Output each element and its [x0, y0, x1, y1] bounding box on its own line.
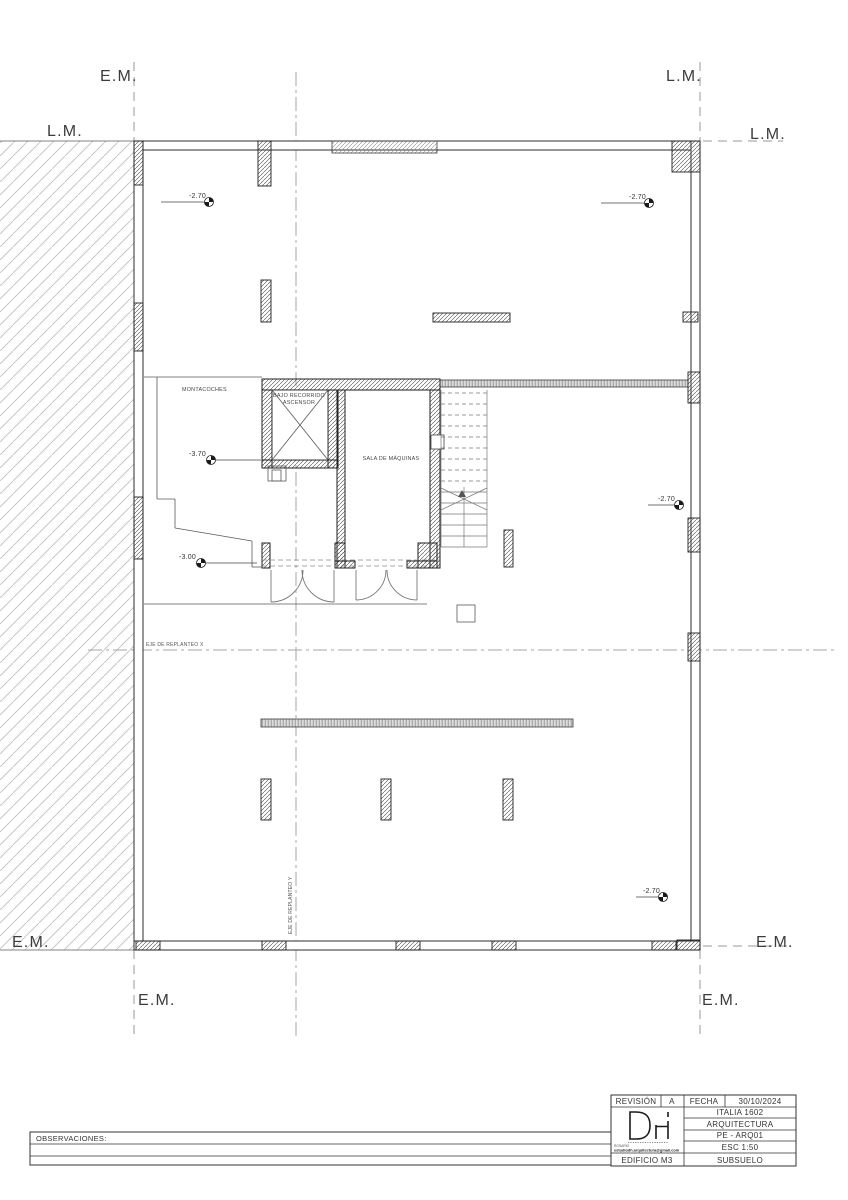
- room-labels: MONTACOCHES BAJO RECORRIDO ASCENSOR SALA…: [146, 387, 420, 934]
- level-value: -3.70: [189, 451, 206, 458]
- boundary-label-em-bottom-right: E.M.: [756, 934, 794, 951]
- lower-beam: [261, 719, 573, 727]
- level-marker-mid-right: -2.70: [648, 496, 684, 510]
- title-block: REVISIÓN A FECHA 30/10/2024 ITALIA 1602 …: [611, 1095, 796, 1166]
- party-wall-hatch: [0, 141, 134, 950]
- level-marker-top-right: -2.70: [601, 194, 654, 208]
- boundary-label-em-axis-right: E.M.: [702, 992, 740, 1009]
- studio-email: estudiodh.arquitectura@gmail.com: [614, 1148, 680, 1153]
- drawing-sheet: -2.70 -2.70 -3.70 -3.00 -2.70 -2.70 MONT…: [0, 0, 848, 1200]
- revision-label: REVISIÓN: [616, 1097, 657, 1106]
- level-value: -2.70: [629, 194, 646, 201]
- level-marker-montacoches-lower: -3.00: [179, 554, 257, 568]
- setout-axis-x-label: EJE DE REPLANTEO X: [146, 642, 204, 648]
- discipline: ARQUITECTURA: [707, 1120, 774, 1129]
- boundary-label-lm-right: L.M.: [750, 126, 786, 143]
- setout-axis-y-label: EJE DE REPLANTEO Y: [288, 876, 294, 934]
- level-value: -2.70: [643, 888, 660, 895]
- building-name: EDIFICIO M3: [621, 1156, 673, 1165]
- revision-value: A: [669, 1097, 675, 1106]
- elevator-pit-label-2: ASCENSOR: [283, 400, 315, 406]
- date-label: FECHA: [690, 1097, 719, 1106]
- level-value: -2.70: [189, 193, 206, 200]
- sheet-code: PE - ARQ01: [717, 1131, 764, 1140]
- level-marker-bottom-right: -2.70: [636, 888, 668, 902]
- level-marker-top-left: -2.70: [161, 193, 214, 207]
- elevator-pit-label-1: BAJO RECORRIDO: [273, 393, 325, 399]
- axis-lines: [88, 62, 836, 1038]
- scale: ESC 1:50: [722, 1143, 759, 1152]
- level-value: -3.00: [179, 554, 196, 561]
- boundary-label-em-top-left: E.M.: [100, 68, 138, 85]
- elevator-core: [262, 379, 444, 568]
- level-value: -2.70: [658, 496, 675, 503]
- machine-room-label: SALA DE MÁQUINAS: [363, 455, 420, 462]
- mid-beam: [440, 380, 688, 387]
- boundary-label-em-bottom-left: E.M.: [12, 934, 50, 951]
- boundary-label-em-axis-left: E.M.: [138, 992, 176, 1009]
- montacoches-label: MONTACOCHES: [182, 387, 227, 393]
- observaciones-label: OBSERVACIONES:: [36, 1134, 107, 1143]
- columns: [134, 141, 700, 950]
- observaciones-box: OBSERVACIONES:: [30, 1132, 611, 1165]
- column-outline: [457, 605, 475, 622]
- doors: [271, 570, 417, 602]
- stairs: [441, 390, 487, 547]
- stair-direction-arrow: [458, 490, 466, 497]
- boundary-label-lm-top-left: L.M.: [47, 123, 83, 140]
- sheet-name: SUBSUELO: [717, 1156, 763, 1165]
- top-wall-beam: [332, 141, 437, 153]
- floor-plan-canvas: -2.70 -2.70 -3.70 -3.00 -2.70 -2.70 MONT…: [0, 0, 848, 1200]
- perimeter-walls: [134, 141, 700, 950]
- level-marker-montacoches-upper: -3.70: [189, 451, 261, 465]
- project-name: ITALIA 1602: [717, 1108, 764, 1117]
- studio-logo: [628, 1112, 668, 1143]
- date-value: 30/10/2024: [738, 1097, 781, 1106]
- boundary-label-lm-top-right: L.M.: [666, 68, 702, 85]
